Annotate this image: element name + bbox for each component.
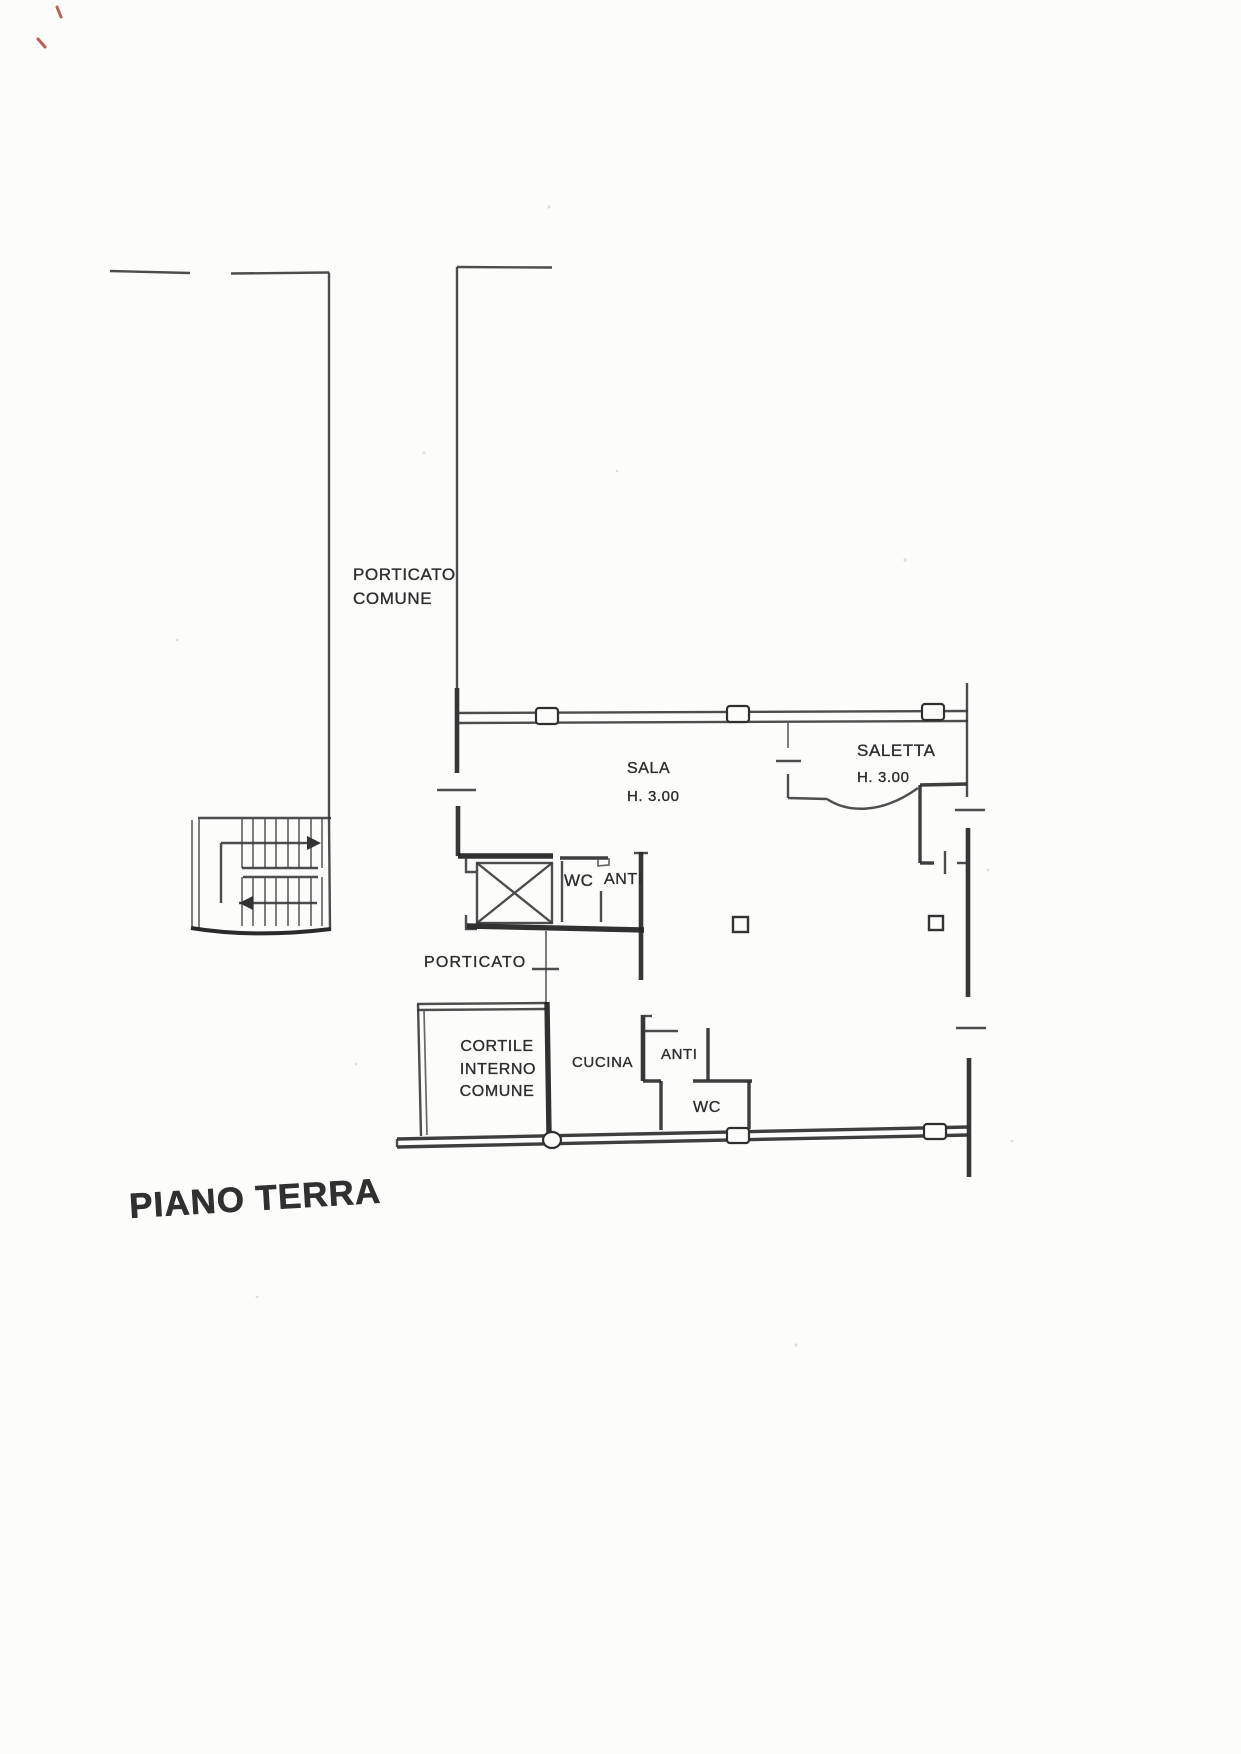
- red-pen-mark: [57, 7, 61, 17]
- labels: PORTICATO COMUNE SALA H. 3.00 SALETTA H.…: [128, 565, 935, 1226]
- porticato-passage-mark: [532, 931, 559, 1002]
- porticato-comune-boundary: [110, 267, 552, 818]
- label-porticato-comune-line2: COMUNE: [353, 589, 432, 608]
- label-saletta: SALETTA: [857, 741, 936, 760]
- elevator-x-mark: [477, 863, 552, 923]
- column: [929, 916, 943, 930]
- label-wc-upper: WC: [564, 871, 594, 890]
- top-wall: [457, 711, 968, 723]
- pillar: [924, 1124, 946, 1139]
- label-cucina: CUCINA: [572, 1054, 633, 1071]
- wall-junction-bump: [543, 1132, 561, 1148]
- floorplan-drawing: PORTICATO COMUNE SALA H. 3.00 SALETTA H.…: [0, 0, 1241, 1754]
- bottom-wall: [397, 1127, 969, 1148]
- right-wall: [955, 683, 986, 1177]
- pillar: [922, 704, 944, 720]
- label-wc-lower: WC: [693, 1099, 721, 1116]
- column: [733, 917, 748, 932]
- floor-title: PIANO TERRA: [128, 1172, 382, 1226]
- wall-jamb: [466, 857, 476, 872]
- scanned-floorplan-page: PORTICATO COMUNE SALA H. 3.00 SALETTA H.…: [0, 0, 1241, 1754]
- label-cortile-line3: COMUNE: [460, 1083, 535, 1100]
- free-columns: [733, 916, 943, 932]
- label-porticato: PORTICATO: [424, 954, 526, 971]
- pillar: [727, 706, 749, 722]
- stair-direction-arrow-left: [239, 896, 253, 910]
- curved-wall: [827, 788, 918, 809]
- label-porticato-comune-line1: PORTICATO: [353, 565, 456, 584]
- label-anti-upper: ANTI: [604, 871, 643, 888]
- label-sala: SALA: [627, 760, 670, 777]
- label-cortile-line2: INTERNO: [460, 1061, 536, 1078]
- red-pen-mark: [38, 39, 45, 47]
- label-saletta-height: H. 3.00: [857, 769, 910, 786]
- label-anti-lower: ANTI: [661, 1046, 698, 1063]
- label-sala-height: H. 3.00: [627, 788, 680, 805]
- stair-direction-arrow-right: [307, 836, 321, 850]
- pillar: [536, 708, 558, 724]
- label-cortile-line1: CORTILE: [460, 1038, 533, 1055]
- pillar: [727, 1128, 749, 1143]
- staircase: [191, 818, 331, 933]
